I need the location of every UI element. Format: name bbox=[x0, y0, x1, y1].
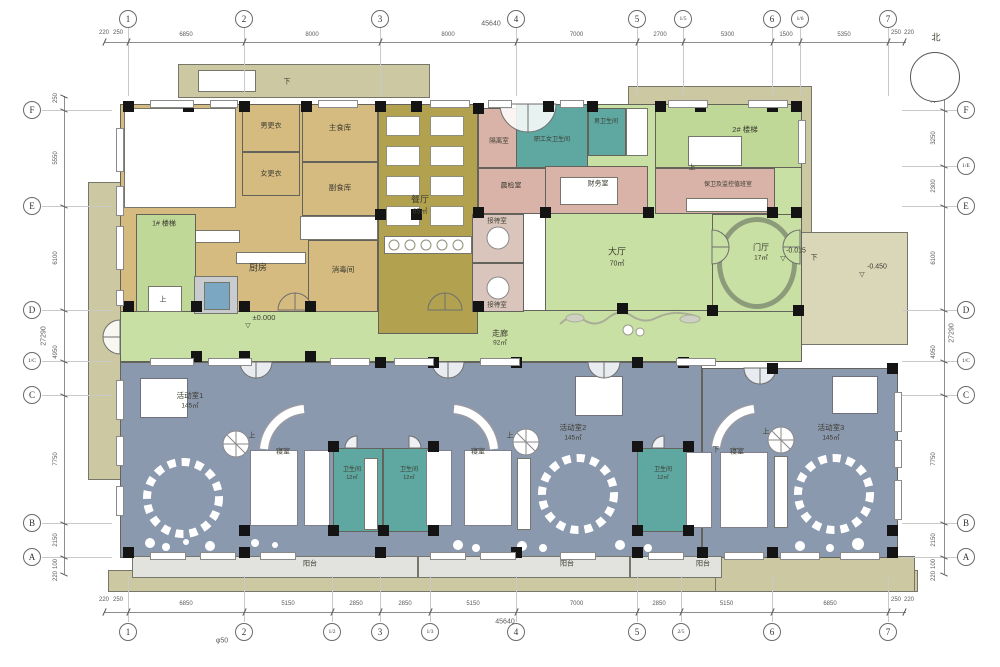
grid-stem bbox=[902, 361, 957, 362]
room-label: ▽ bbox=[780, 255, 785, 262]
window bbox=[260, 552, 296, 560]
column bbox=[655, 101, 666, 112]
total-width-bottom: 45640 bbox=[495, 618, 514, 625]
grid-bubble: 1/6 bbox=[791, 10, 809, 28]
grid-stem bbox=[42, 395, 112, 396]
room-label: 阳台 bbox=[560, 560, 574, 567]
column bbox=[328, 441, 339, 452]
dim-label: 6850 bbox=[179, 601, 192, 607]
dining-table bbox=[430, 116, 464, 136]
column bbox=[543, 101, 554, 112]
room-label: 145㎡ bbox=[181, 404, 198, 411]
room-label: 上 bbox=[689, 164, 696, 171]
hall-landscape bbox=[560, 312, 700, 336]
dim-label: 8000 bbox=[305, 32, 318, 38]
room-label: 保卫及监控值班室 bbox=[704, 182, 752, 188]
serving-bowls bbox=[389, 240, 463, 250]
room-label: 上 bbox=[249, 432, 256, 439]
column bbox=[617, 303, 628, 314]
reception-tables bbox=[487, 227, 509, 299]
column bbox=[375, 101, 386, 112]
grid-bubble: 6 bbox=[763, 10, 781, 28]
dim-line bbox=[64, 96, 65, 574]
dim-label: 7000 bbox=[570, 601, 583, 607]
room-label: 卫生间 bbox=[400, 467, 418, 473]
column bbox=[540, 207, 551, 218]
room-label: 财务室 bbox=[588, 180, 609, 187]
window bbox=[894, 392, 902, 432]
room-label: ▽ bbox=[859, 271, 864, 278]
room-label: 上 bbox=[507, 432, 514, 439]
room-label: 寝室 bbox=[276, 448, 290, 455]
room-label: 下 bbox=[713, 446, 720, 453]
room-label: 餐厅 bbox=[411, 195, 429, 204]
dining-table bbox=[430, 146, 464, 166]
column bbox=[428, 525, 439, 536]
grid-bubble: D bbox=[957, 301, 975, 319]
column bbox=[305, 301, 316, 312]
room-label: 消毒间 bbox=[332, 266, 355, 274]
room-label: 隔离室 bbox=[489, 139, 509, 146]
dim-label: 7750 bbox=[931, 452, 937, 465]
window bbox=[150, 358, 194, 366]
column bbox=[793, 305, 804, 316]
room-label: 活动室2 bbox=[560, 424, 587, 432]
dim-label: 2150 bbox=[931, 533, 937, 546]
grid-stem bbox=[902, 110, 957, 111]
grid-bubble: A bbox=[23, 548, 41, 566]
column bbox=[473, 207, 484, 218]
window bbox=[394, 358, 434, 366]
grid-bubble: 4 bbox=[507, 623, 525, 641]
dim-label: 250 bbox=[113, 597, 123, 603]
room-label: 职工女卫生间 bbox=[534, 137, 570, 143]
column bbox=[123, 101, 134, 112]
column bbox=[587, 101, 598, 112]
door-arc-corridor-dining bbox=[428, 293, 462, 310]
grid-stem bbox=[380, 576, 381, 622]
window bbox=[208, 358, 252, 366]
window bbox=[480, 358, 520, 366]
grid-bubble: 1/C bbox=[23, 352, 41, 370]
window bbox=[116, 436, 124, 466]
window bbox=[668, 100, 708, 108]
room-label: 活动室3 bbox=[818, 424, 845, 432]
dim-label: 2850 bbox=[652, 601, 665, 607]
room-label: 厨房 bbox=[249, 263, 267, 272]
window bbox=[894, 440, 902, 468]
column bbox=[707, 305, 718, 316]
chair-circles bbox=[147, 458, 870, 534]
dim-line bbox=[104, 42, 906, 43]
grid-bubble: 2/5 bbox=[672, 623, 690, 641]
total-width-top: 45640 bbox=[481, 20, 500, 27]
column bbox=[632, 547, 643, 558]
grid-bubble: A bbox=[957, 548, 975, 566]
window bbox=[748, 100, 788, 108]
room-label: 92㎡ bbox=[493, 341, 507, 348]
dim-label: 5300 bbox=[721, 32, 734, 38]
column bbox=[887, 363, 898, 374]
dim-label: 7750 bbox=[53, 452, 59, 465]
grid-bubble: 1/2 bbox=[323, 623, 341, 641]
grid-bubble: 1/5 bbox=[674, 10, 692, 28]
floor-plan-canvas: 厨房1# 楼梯上男更衣女更衣主食库副食库消毒间餐厅65㎡隔离室晨检室职工女卫生间… bbox=[0, 0, 1000, 667]
pile-note: φ50 bbox=[216, 637, 228, 644]
dim-label: 5150 bbox=[466, 601, 479, 607]
column bbox=[239, 547, 250, 558]
grid-stem bbox=[888, 576, 889, 622]
room-label: 晨检室 bbox=[501, 182, 522, 189]
grid-bubble: F bbox=[957, 101, 975, 119]
window bbox=[116, 486, 124, 516]
dim-label: 2850 bbox=[349, 601, 362, 607]
grid-bubble: D bbox=[23, 301, 41, 319]
dim-label: 220 bbox=[53, 571, 59, 581]
column bbox=[123, 547, 134, 558]
window bbox=[894, 480, 902, 520]
grid-stem bbox=[772, 576, 773, 622]
grid-stem bbox=[42, 206, 112, 207]
window bbox=[676, 358, 716, 366]
grid-stem bbox=[902, 166, 957, 167]
dining-table bbox=[386, 176, 420, 196]
column bbox=[791, 101, 802, 112]
grid-bubble: 3 bbox=[371, 10, 389, 28]
grid-bubble: 3 bbox=[371, 623, 389, 641]
room-label: ▽ bbox=[245, 322, 250, 329]
dim-label: 5550 bbox=[53, 151, 59, 164]
column bbox=[301, 101, 312, 112]
room-label: 女更衣 bbox=[261, 170, 282, 177]
grid-bubble: 1/3 bbox=[421, 623, 439, 641]
dim-label: 5350 bbox=[837, 32, 850, 38]
dim-label: 220 bbox=[904, 30, 914, 36]
grid-bubble: 2 bbox=[235, 10, 253, 28]
column bbox=[632, 441, 643, 452]
column bbox=[887, 547, 898, 558]
room-label: 活动室1 bbox=[177, 392, 204, 400]
room-label: 下 bbox=[811, 254, 818, 261]
window bbox=[150, 552, 186, 560]
grid-stem bbox=[42, 110, 112, 111]
window bbox=[648, 552, 684, 560]
window bbox=[116, 128, 124, 172]
room-label: -0.450 bbox=[867, 263, 887, 270]
column bbox=[305, 351, 316, 362]
grid-stem bbox=[902, 557, 957, 558]
room-label: 70㎡ bbox=[610, 260, 625, 267]
window bbox=[430, 552, 466, 560]
column bbox=[239, 101, 250, 112]
column bbox=[632, 357, 643, 368]
window bbox=[488, 100, 512, 108]
dining-table bbox=[386, 116, 420, 136]
room-label: 卫生间 bbox=[654, 467, 672, 473]
room-label: 上 bbox=[763, 428, 770, 435]
grid-bubble: B bbox=[23, 514, 41, 532]
play-balls bbox=[145, 538, 864, 552]
dim-label: 220 bbox=[931, 571, 937, 581]
grid-bubble: E bbox=[957, 197, 975, 215]
door-arc-side-entrance bbox=[103, 320, 120, 354]
dim-label: 2850 bbox=[398, 601, 411, 607]
dining-table bbox=[430, 176, 464, 196]
grid-stem bbox=[902, 523, 957, 524]
grid-stem bbox=[902, 206, 957, 207]
window bbox=[318, 100, 358, 108]
room-label: 男卫生间 bbox=[594, 119, 618, 125]
room-label: 寝室 bbox=[730, 448, 744, 455]
window bbox=[116, 226, 124, 270]
window bbox=[798, 120, 806, 164]
grid-stem bbox=[42, 557, 112, 558]
window bbox=[724, 552, 764, 560]
room-label: 主食库 bbox=[329, 124, 352, 132]
window bbox=[150, 100, 194, 108]
grid-stem bbox=[42, 310, 112, 311]
room-label: 65㎡ bbox=[413, 208, 428, 215]
window bbox=[560, 552, 596, 560]
window bbox=[560, 100, 584, 108]
north-label: 北 bbox=[931, 33, 940, 42]
room-label: 阳台 bbox=[303, 560, 317, 567]
column bbox=[632, 525, 643, 536]
north-arrow-icon bbox=[910, 52, 960, 102]
room-label: 大厅 bbox=[608, 247, 626, 256]
grid-stem bbox=[42, 361, 112, 362]
column bbox=[191, 301, 202, 312]
grid-stem bbox=[516, 576, 517, 622]
room-label: 145㎡ bbox=[822, 436, 839, 443]
column bbox=[767, 363, 778, 374]
column bbox=[328, 525, 339, 536]
dim-label: 6850 bbox=[179, 32, 192, 38]
column bbox=[375, 209, 386, 220]
total-height-right: 27290 bbox=[948, 323, 955, 342]
dim-label: 3250 bbox=[931, 131, 937, 144]
dim-label: 2700 bbox=[653, 32, 666, 38]
dim-label: 250 bbox=[113, 30, 123, 36]
dim-label: 6100 bbox=[53, 251, 59, 264]
room-label: 12㎡ bbox=[346, 476, 358, 482]
grid-stem bbox=[430, 576, 431, 622]
window bbox=[780, 552, 820, 560]
column bbox=[643, 207, 654, 218]
grid-bubble: 4 bbox=[507, 10, 525, 28]
column bbox=[239, 301, 250, 312]
column bbox=[767, 547, 778, 558]
grid-bubble: C bbox=[23, 386, 41, 404]
column bbox=[887, 525, 898, 536]
room-label: 下 bbox=[284, 78, 291, 85]
dim-label: 250 bbox=[891, 597, 901, 603]
dim-label: 7000 bbox=[570, 32, 583, 38]
grid-stem bbox=[332, 576, 333, 622]
room-label: 副食库 bbox=[329, 184, 352, 192]
grid-stem bbox=[902, 395, 957, 396]
column bbox=[683, 525, 694, 536]
column bbox=[375, 357, 386, 368]
dim-line bbox=[104, 612, 906, 613]
grid-bubble: 1/E bbox=[957, 157, 975, 175]
room-label: 男更衣 bbox=[261, 122, 282, 129]
room-label: 上 bbox=[160, 296, 167, 303]
column bbox=[473, 301, 484, 312]
grid-bubble: 6 bbox=[763, 623, 781, 641]
dim-label: 6850 bbox=[823, 601, 836, 607]
window bbox=[430, 100, 470, 108]
dim-label: 100 bbox=[53, 559, 59, 569]
grid-stem bbox=[681, 576, 682, 622]
dim-label: 1500 bbox=[779, 32, 792, 38]
dining-table bbox=[386, 146, 420, 166]
room-label: ±0.000 bbox=[253, 314, 276, 322]
dim-label: 2150 bbox=[53, 533, 59, 546]
dim-label: 2300 bbox=[931, 179, 937, 192]
column bbox=[767, 207, 778, 218]
window bbox=[200, 552, 236, 560]
dim-label: 4950 bbox=[931, 345, 937, 358]
column bbox=[375, 547, 386, 558]
window bbox=[116, 290, 124, 306]
total-height-left: 27290 bbox=[40, 326, 47, 345]
dim-label: 5150 bbox=[281, 601, 294, 607]
grid-bubble: F bbox=[23, 101, 41, 119]
grid-stem bbox=[128, 576, 129, 622]
dim-label: 6100 bbox=[931, 251, 937, 264]
column bbox=[378, 525, 389, 536]
window bbox=[330, 358, 370, 366]
column bbox=[411, 101, 422, 112]
dining-table bbox=[430, 206, 464, 226]
room-label: 接待室 bbox=[487, 219, 507, 226]
column bbox=[683, 441, 694, 452]
room-label: -0.015 bbox=[786, 247, 806, 254]
window bbox=[480, 552, 516, 560]
dim-label: 250 bbox=[53, 93, 59, 103]
grid-bubble: 5 bbox=[628, 10, 646, 28]
grid-bubble: 1 bbox=[119, 623, 137, 641]
column bbox=[239, 525, 250, 536]
room-label: 阳台 bbox=[696, 560, 710, 567]
window bbox=[210, 100, 238, 108]
grid-bubble: 7 bbox=[879, 623, 897, 641]
grid-bubble: C bbox=[957, 386, 975, 404]
grid-stem bbox=[244, 576, 245, 622]
room-label: 寝室 bbox=[471, 448, 485, 455]
room-label: 17㎡ bbox=[754, 256, 768, 263]
dim-label: 250 bbox=[891, 30, 901, 36]
room-label: 145㎡ bbox=[564, 436, 581, 443]
dim-label: 220 bbox=[99, 597, 109, 603]
room-label: 接待室 bbox=[487, 303, 507, 310]
grid-bubble: 2 bbox=[235, 623, 253, 641]
grid-bubble: 1 bbox=[119, 10, 137, 28]
door-arc-wc bbox=[345, 436, 664, 448]
grid-bubble: 7 bbox=[879, 10, 897, 28]
room-label: 门厅 bbox=[753, 244, 769, 252]
grid-bubble: 1/C bbox=[957, 352, 975, 370]
grid-stem bbox=[902, 310, 957, 311]
grid-bubble: 5 bbox=[628, 623, 646, 641]
column bbox=[123, 301, 134, 312]
column bbox=[697, 547, 708, 558]
grid-stem bbox=[42, 523, 112, 524]
window bbox=[116, 186, 124, 216]
column bbox=[428, 441, 439, 452]
grid-bubble: B bbox=[957, 514, 975, 532]
grid-stem bbox=[637, 576, 638, 622]
room-label: 1# 楼梯 bbox=[152, 220, 176, 227]
dim-label: 220 bbox=[904, 597, 914, 603]
dim-label: 5150 bbox=[720, 601, 733, 607]
grid-bubble: E bbox=[23, 197, 41, 215]
dim-label: 220 bbox=[99, 30, 109, 36]
column bbox=[473, 103, 484, 114]
dim-label: 100 bbox=[931, 559, 937, 569]
room-label: 12㎡ bbox=[403, 476, 415, 482]
window bbox=[840, 552, 880, 560]
column bbox=[791, 207, 802, 218]
window bbox=[116, 380, 124, 420]
room-label: 走廊 bbox=[492, 330, 508, 338]
room-label: 12㎡ bbox=[657, 476, 669, 482]
room-label: 卫生间 bbox=[343, 467, 361, 473]
dim-label: 8000 bbox=[441, 32, 454, 38]
room-label: 2# 楼梯 bbox=[732, 126, 757, 134]
dim-label: 4950 bbox=[53, 345, 59, 358]
